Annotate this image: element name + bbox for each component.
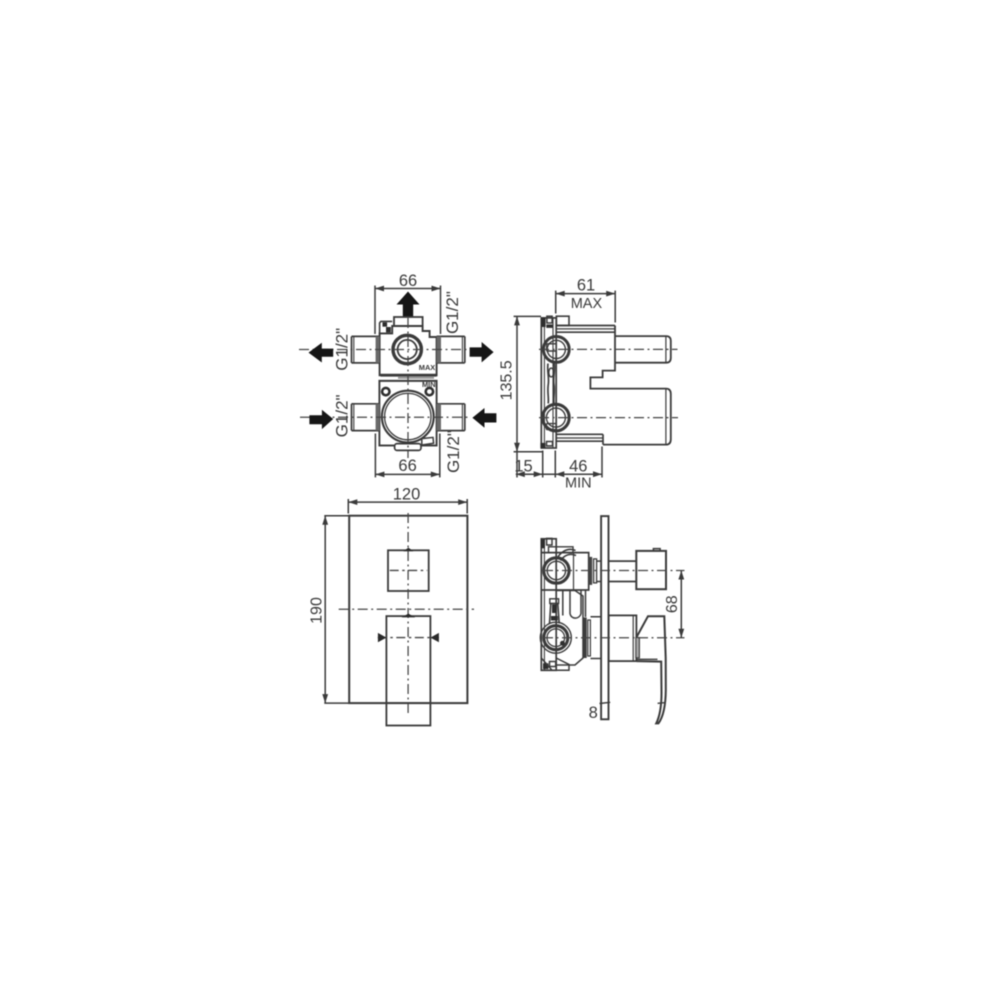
svg-text:120: 120 [393,485,421,503]
svg-text:61: 61 [577,277,595,295]
svg-text:G1/2": G1/2" [332,328,351,371]
svg-text:8: 8 [589,704,598,722]
svg-text:G1/2": G1/2" [443,291,462,334]
svg-text:MAX: MAX [419,363,435,372]
svg-text:66: 66 [399,272,417,290]
svg-text:15: 15 [514,457,532,475]
svg-text:MIN: MIN [565,475,592,491]
svg-text:G1/2": G1/2" [332,394,351,437]
svg-text:135.5: 135.5 [499,360,516,400]
svg-text:MAX: MAX [571,296,603,312]
svg-text:66: 66 [398,457,416,475]
svg-text:G1/2": G1/2" [444,430,463,473]
svg-text:68: 68 [664,595,681,613]
svg-text:190: 190 [309,597,326,624]
svg-text:46: 46 [569,457,587,475]
